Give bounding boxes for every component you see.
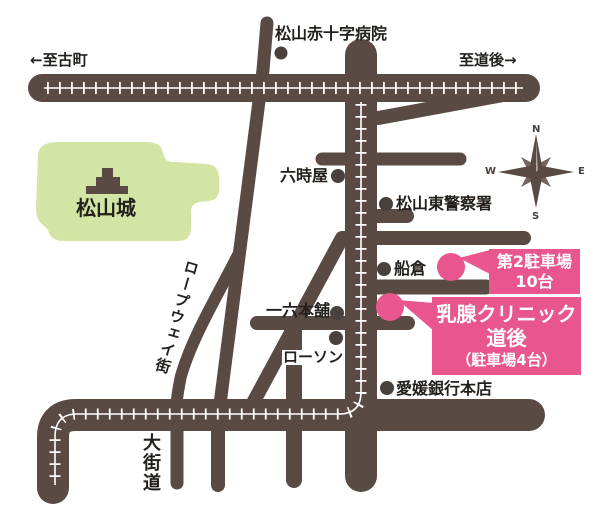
label-direction-east: 至道後→	[459, 53, 517, 68]
poi-dot-lawson	[329, 331, 343, 345]
compass-icon	[498, 134, 574, 208]
label-lawson: ローソン	[282, 350, 344, 365]
clinic-marker	[376, 293, 404, 321]
clinic-callout: 乳腺クリニック 道後 （駐車場4台）	[432, 297, 581, 375]
parking2-name: 第2駐車場	[497, 252, 572, 271]
label-rokujiya: 六時屋	[280, 168, 328, 184]
label-okaido: 大街道	[141, 433, 159, 493]
clinic-name-line2: 道後	[487, 327, 527, 351]
poi-dot-bank	[380, 381, 394, 395]
route-map: 松山赤十字病院 ←至古町 至道後→ 松山城 六時屋 松山東警察署 船倉 一六本舗…	[0, 0, 606, 520]
clinic-name-line1: 乳腺クリニック	[437, 303, 577, 327]
label-castle: 松山城	[76, 198, 136, 218]
parking2-marker	[437, 253, 465, 281]
clinic-parking-note: （駐車場4台）	[456, 351, 556, 369]
label-funakura: 船倉	[394, 261, 426, 277]
parking2-capacity: 10台	[515, 272, 553, 291]
label-bank: 愛媛銀行本店	[396, 381, 492, 397]
poi-dot-ichiroku	[330, 306, 344, 320]
parking2-callout: 第2駐車場 10台	[489, 249, 580, 294]
label-hospital: 松山赤十字病院	[275, 26, 387, 42]
compass-south-label: S	[532, 211, 539, 222]
compass-north-label: N	[532, 124, 540, 135]
label-police: 松山東警察署	[396, 196, 492, 212]
label-direction-west: ←至古町	[30, 53, 88, 68]
poi-dot-police	[379, 197, 393, 211]
label-ichiroku: 一六本舗	[266, 303, 330, 319]
compass-west-label: W	[485, 166, 496, 177]
compass-east-label: E	[578, 166, 585, 177]
poi-dot-hospital	[275, 47, 288, 60]
poi-dot-funakura	[377, 262, 391, 276]
poi-dot-rokujiya	[331, 169, 345, 183]
